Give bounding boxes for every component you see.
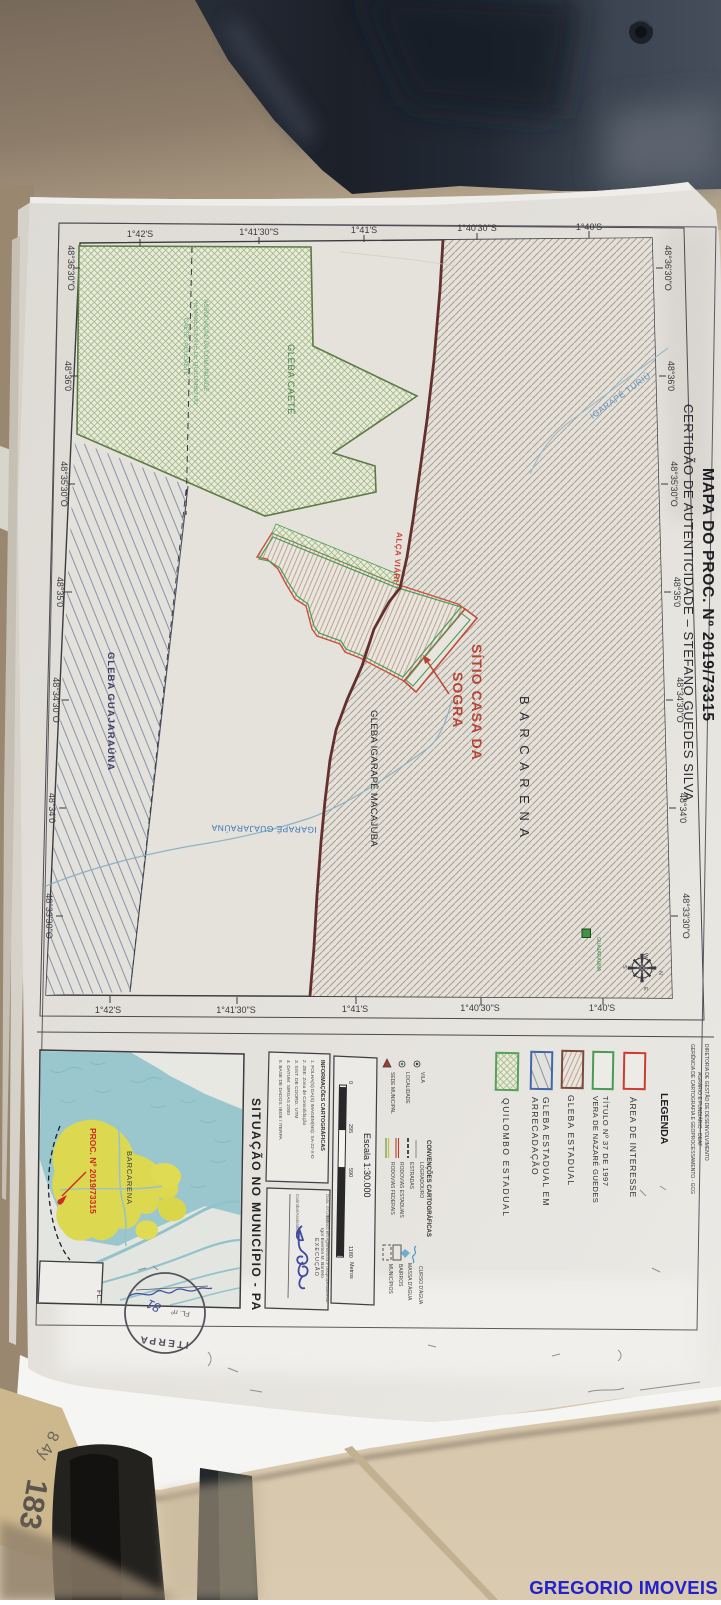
svg-text:48°36'30"O: 48°36'30"O (663, 245, 673, 291)
svg-text:4. DATUM: SIRGAS 2000: 4. DATUM: SIRGAS 2000 (285, 1060, 291, 1115)
svg-text:SEDE MUNICIPAL: SEDE MUNICIPAL (389, 1072, 395, 1114)
svg-text:LOGRADOURO: LOGRADOURO (418, 1162, 424, 1198)
svg-text:GUAJARAÚNA: GUAJARAÚNA (595, 937, 602, 972)
svg-text:48°35'0: 48°35'0 (672, 577, 682, 607)
svg-text:SOGRA: SOGRA (450, 672, 466, 728)
svg-text:RODOVIAS FEDERAIS: RODOVIAS FEDERAIS (389, 1162, 395, 1215)
svg-text:1180: 1180 (347, 1246, 353, 1258)
svg-text:0: 0 (347, 1081, 353, 1084)
svg-text:295: 295 (347, 1124, 353, 1133)
svg-text:Técnico em Agrimensura e Geopr: Técnico em Agrimensura e Geoprocessament… (325, 1215, 330, 1303)
svg-text:48°35'30"O: 48°35'30"O (669, 461, 679, 507)
svg-text:N: N (657, 971, 663, 975)
svg-text:48°35'0: 48°35'0 (55, 577, 65, 607)
svg-text:48°33'30"O: 48°33'30"O (44, 893, 54, 939)
svg-text:GLEBA ESTADUAL: GLEBA ESTADUAL (566, 1095, 576, 1186)
svg-text:GLEBA GUAJARAÚNA: GLEBA GUAJARAÚNA (105, 652, 117, 771)
svg-text:EXECUÇÃO: EXECUÇÃO (313, 1238, 320, 1277)
svg-text:1°40'30"S: 1°40'30"S (457, 223, 497, 233)
svg-text:SÍTIO CASA DA: SÍTIO CASA DA (469, 644, 485, 761)
svg-text:S: S (621, 965, 627, 969)
svg-text:3. SIST. DE COORD.: UTM: 3. SIST. DE COORD.: UTM (293, 1060, 299, 1118)
svg-text:1°41'30"S: 1°41'30"S (216, 1005, 256, 1015)
svg-text:ARRECADAÇÃO: ARRECADAÇÃO (530, 1097, 540, 1176)
svg-text:CURSO D'ÁGUA: CURSO D'ÁGUA (417, 1266, 424, 1305)
svg-text:FL.:: FL.: (95, 1290, 104, 1303)
svg-text:48°34'30"O: 48°34'30"O (51, 677, 61, 723)
svg-text:BARCARENA: BARCARENA (125, 1151, 134, 1205)
svg-text:CONVENÇÕES CARTOGRÁFICAS: CONVENÇÕES CARTOGRÁFICAS (425, 1140, 432, 1237)
svg-text:BARCARENA: BARCARENA (517, 696, 532, 844)
svg-text:LOCALIDADE: LOCALIDADE (404, 1072, 410, 1104)
svg-text:Metros: Metros (348, 1262, 354, 1279)
svg-text:IGARAPÉ GUAJARAÚNA: IGARAPÉ GUAJARAÚNA (211, 823, 317, 835)
svg-text:CAETÉ : AÇUCAETE: CAETÉ : AÇUCAETE (182, 318, 189, 375)
svg-text:QUILOMBO ESTADUAL: QUILOMBO ESTADUAL (501, 1098, 511, 1218)
svg-text:48°35'30"O: 48°35'30"O (59, 461, 69, 507)
svg-text:2. ZEE: Zona de Consolidação: 2. ZEE: Zona de Consolidação (301, 1060, 307, 1126)
svg-text:W: W (642, 953, 648, 959)
svg-text:MUNICÍPIOS: MUNICÍPIOS (387, 1264, 394, 1294)
svg-text:48°34'0: 48°34'0 (47, 793, 57, 823)
svg-text:GLEBA CAETÉ: GLEBA CAETÉ (285, 344, 296, 415)
svg-text:1°42'S: 1°42'S (127, 229, 153, 239)
svg-text:1°41'30"S: 1°41'30"S (239, 227, 279, 237)
svg-text:REMANESCENTE DE QUILOMBO DO: REMANESCENTE DE QUILOMBO DO (192, 300, 198, 405)
svg-text:1°41'S: 1°41'S (351, 225, 377, 235)
svg-text:MAPA DO PROC. Nº 2019/73315: MAPA DO PROC. Nº 2019/73315 (699, 468, 716, 722)
svg-text:GLEBA ESTADUAL EM: GLEBA ESTADUAL EM (541, 1097, 551, 1207)
svg-text:ESTRADAS: ESTRADAS (408, 1162, 414, 1190)
svg-text:CERTIDÃO DE AUTENTICIDADE – ST: CERTIDÃO DE AUTENTICIDADE – STEFANO GUED… (681, 404, 696, 801)
svg-text:SITUAÇÃO NO MUNICÍPIO - PA: SITUAÇÃO NO MUNICÍPIO - PA (249, 1098, 264, 1312)
svg-text:LEGENDA: LEGENDA (658, 1093, 670, 1145)
svg-text:VILA: VILA (419, 1072, 425, 1084)
svg-text:BAIRROS: BAIRROS (397, 1264, 403, 1287)
svg-text:INFORMAÇÕES CARTOGRÁFICAS: INFORMAÇÕES CARTOGRÁFICAS (319, 1060, 326, 1151)
svg-text:ÁREA DE INTERESSE: ÁREA DE INTERESSE (628, 1097, 638, 1198)
svg-text:MASSA D'ÁGUA: MASSA D'ÁGUA (406, 1263, 413, 1301)
svg-text:E: E (642, 987, 648, 991)
svg-text:1. FOLHA(S) DA(S) IMAGEM(NS):: 1. FOLHA(S) DA(S) IMAGEM(NS): SA-22-X-D (309, 1060, 315, 1159)
svg-text:VERA DE NAZARÉ GUEDES: VERA DE NAZARÉ GUEDES (591, 1096, 600, 1203)
svg-text:Igor Everton M. Barreto: Igor Everton M. Barreto (319, 1228, 325, 1278)
svg-text:1°42'S: 1°42'S (95, 1005, 121, 1015)
svg-text:1°40'S: 1°40'S (576, 222, 602, 232)
svg-text:· ASSOCIAÇÃO DA COMUNIDADE: · ASSOCIAÇÃO DA COMUNIDADE (202, 296, 209, 391)
svg-text:GERÊNCIA DE CARTOGRAFIA E GEOP: GERÊNCIA DE CARTOGRAFIA E GEOPROCESSAMEN… (689, 1044, 697, 1194)
svg-text:48°33'30"O: 48°33'30"O (681, 893, 691, 939)
svg-text:RODOVIAS ESTADUAIS: RODOVIAS ESTADUAIS (398, 1162, 404, 1218)
svg-text:1°41'S: 1°41'S (342, 1004, 368, 1014)
svg-text:5. BASE DE DADOS: IBGE / ITERP: 5. BASE DE DADOS: IBGE / ITERPA (277, 1060, 283, 1140)
svg-text:DIRETORIA DE GESTÃO DE DESENVO: DIRETORIA DE GESTÃO DE DESENVOLVIMENTO (703, 1044, 710, 1161)
svg-text:AGRÁRIO E FUNDIÁRIO - DEAF: AGRÁRIO E FUNDIÁRIO - DEAF (696, 1072, 703, 1146)
svg-text:590: 590 (347, 1168, 353, 1177)
svg-text:PROC. Nº 2019/73315: PROC. Nº 2019/73315 (88, 1128, 98, 1214)
svg-text:GLEBA IGARAPÉ MACAJUBA: GLEBA IGARAPÉ MACAJUBA (368, 710, 379, 847)
svg-text:1°40'S: 1°40'S (589, 1003, 615, 1013)
svg-text:TÍTULO Nº 37 DE 1997: TÍTULO Nº 37 DE 1997 (601, 1096, 610, 1187)
svg-text:Escala 1:30.000: Escala 1:30.000 (362, 1133, 372, 1198)
svg-text:GREGORIO IMOVEIS: GREGORIO IMOVEIS (529, 1577, 718, 1598)
svg-text:48°36'0: 48°36'0 (666, 361, 676, 391)
svg-text:1°40'30"S: 1°40'30"S (460, 1003, 500, 1013)
